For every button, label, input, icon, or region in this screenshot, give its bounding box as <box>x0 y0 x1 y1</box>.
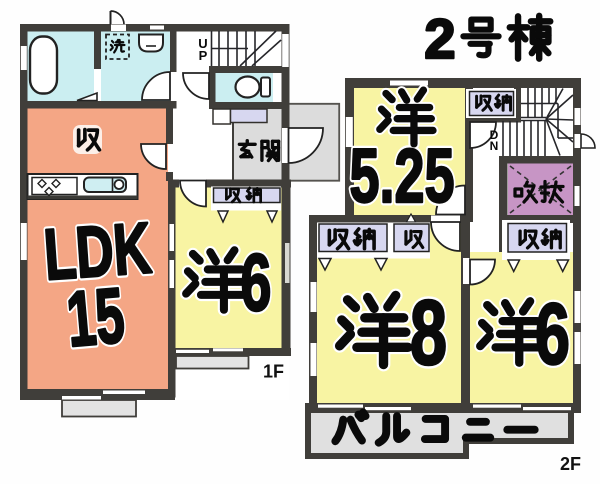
svg-text:2: 2 <box>424 7 455 70</box>
svg-text:6: 6 <box>241 238 272 328</box>
svg-text:1F: 1F <box>263 362 284 382</box>
svg-text:N: N <box>490 139 499 153</box>
svg-text:P: P <box>199 48 208 63</box>
svg-text:2F: 2F <box>560 454 581 474</box>
svg-text:15: 15 <box>63 271 127 364</box>
svg-text:5.25: 5.25 <box>350 134 455 219</box>
svg-text:6: 6 <box>535 287 570 383</box>
svg-text:8: 8 <box>410 282 447 384</box>
